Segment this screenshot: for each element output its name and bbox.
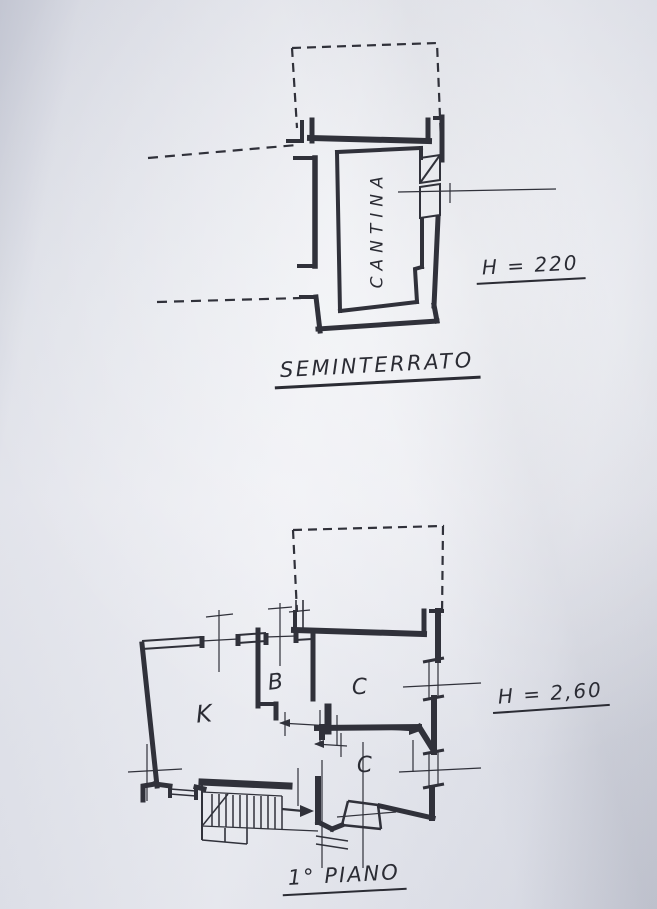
floor-plan-linework — [0, 0, 657, 909]
room-label-b: B — [267, 670, 285, 696]
k-bottom-window — [128, 744, 196, 801]
scanned-floor-plan-page: CANTINA H = 220 SEMINTERRATO K B C C H =… — [0, 0, 657, 909]
property-boundary-dashed — [148, 43, 441, 302]
seminterrato-plan-drawing — [148, 43, 556, 331]
k-top-wall-windows — [142, 603, 312, 672]
height-label-seminterrato: H = 220 — [475, 251, 585, 285]
room-label-c-upper: C — [351, 675, 368, 700]
flue-symbol — [289, 600, 310, 629]
c-room-windows — [399, 658, 481, 788]
primo-piano-walls — [142, 611, 442, 829]
room-label-cantina: CANTINA — [369, 172, 388, 288]
dimension-lines — [279, 710, 420, 868]
room-label-c-lower: C — [356, 753, 373, 778]
property-boundary-dashed — [293, 526, 443, 616]
primo-piano-plan-drawing — [128, 526, 481, 868]
staircase — [202, 782, 348, 849]
window-symbol — [398, 155, 556, 218]
room-label-k: K — [195, 700, 213, 728]
stair-direction-arrow — [282, 805, 314, 817]
